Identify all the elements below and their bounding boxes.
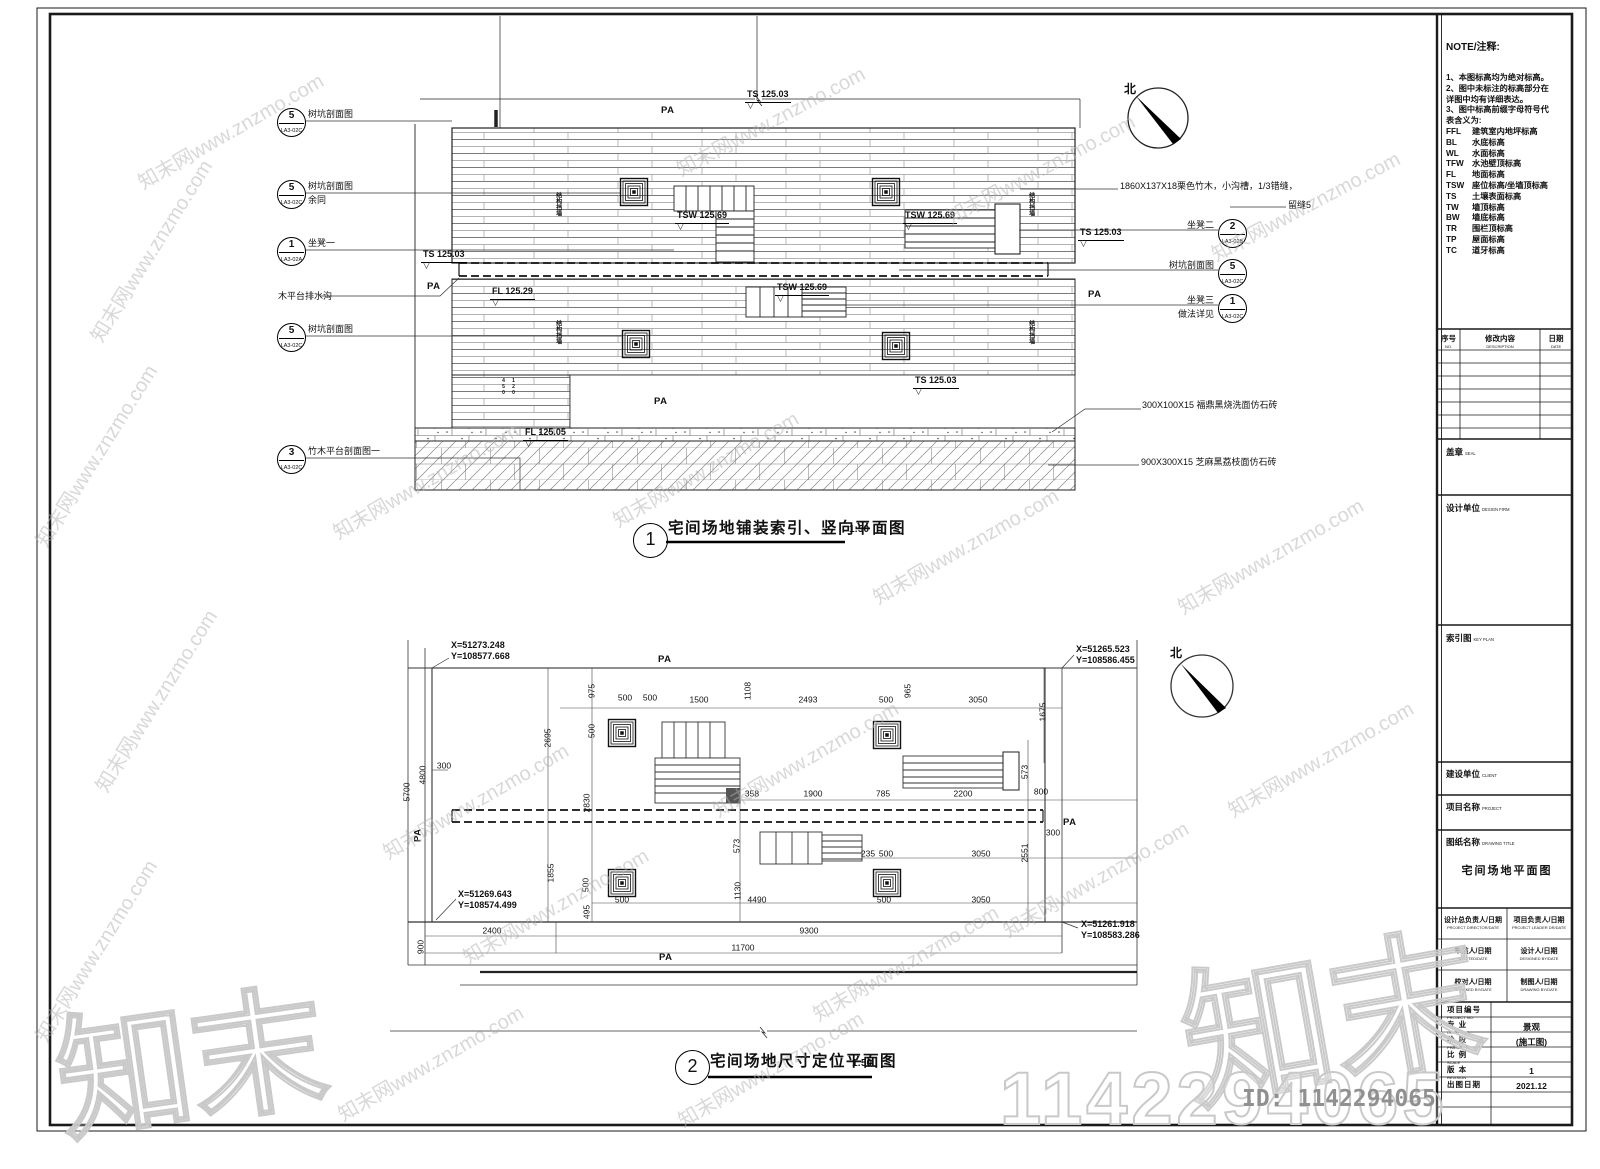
note-line: 表含义为: [1446,116,1570,127]
dimension-label: 1900 [804,789,823,798]
elevation-label: FL 125.29 [490,287,535,300]
abbreviation-desc: 屋面标高 [1472,235,1505,246]
callout-label: 竹木平台剖面图一 [308,447,380,457]
staff-cell: 项目负责人/日期PROJECT LEADER DR/DATE [1506,915,1572,930]
abbreviation-row: FFL建筑室内地坪标高 [1446,127,1570,138]
staff-cell-zh: 项目负责人/日期 [1506,915,1572,925]
dimension-label: 500 [587,724,596,738]
abbreviation-row: TW墙顶标高 [1446,203,1570,214]
plan1-title-number: 1 [633,523,668,558]
dimension-label: 4800 [418,766,427,785]
staff-cell: 设计人/日期DESIGNED BY/DATE [1506,946,1572,961]
staff-cell-zh: 制图人/日期 [1506,977,1572,987]
abbreviation-row: TS土壤表面标高 [1446,192,1570,203]
coordinate-label: X=51269.643Y=108574.499 [458,889,517,911]
staff-cell-en: DRAWING BY/DATE [1506,987,1572,992]
dimension-label: 800 [1034,787,1048,796]
info-row-value: 景观 [1491,1021,1572,1033]
callout-number: 1 [1219,296,1246,307]
abbreviation-code: FFL [1446,127,1472,138]
revision-col-date: 日期DATE [1540,333,1572,349]
annotation-label: 1860X137X18栗色竹木，小沟槽，1/3错缝， [1120,182,1298,192]
plan1-title: 宅间场地铺装索引、竖向平面图 [668,516,906,538]
callout-number: 5 [278,325,305,336]
abbreviation-row: BL水底标高 [1446,138,1570,149]
drawing-sheet: 1 宅间场地铺装索引、竖向平面图 1:50 2 宅间场地尺寸定位平面图 1:50… [0,0,1600,1139]
vertical-text-label: 结构挡墙 [554,320,561,344]
dimension-label: 495 [582,905,591,919]
dimension-label: 2551 [1020,844,1029,863]
abbreviation-row: TP屋面标高 [1446,235,1570,246]
vertical-text-label: 450 [500,378,506,396]
client-label: 建设单位CLIENT [1446,764,1497,782]
dimension-label: 965 [903,684,912,698]
plan2-scale: 1:50 [852,1058,872,1069]
detail-callout: 5LA3-02C [277,180,306,209]
callout-label: 坐凳一 [308,239,335,249]
dimension-label: 500 [643,693,657,702]
abbreviation-desc: 地面标高 [1472,170,1505,181]
abbreviation-desc: 土壤表面标高 [1472,192,1521,203]
notes-title: NOTE/注释: [1446,38,1570,53]
callout-label: 树坑剖面图 [308,110,353,120]
pa-label: PA [661,106,675,116]
callout-number: 5 [278,182,305,193]
drawing-title-value: 宅间场地平面图 [1442,862,1572,878]
dimension-label: 573 [732,839,741,853]
callout-sheet: LA3-02C [278,343,305,349]
elevation-label: TSW 125.69 [775,283,829,296]
callout-sheet: LA3-02C [278,200,305,206]
dimension-label: 9300 [800,926,819,935]
notes-list: 1、本图标高均为绝对标高。2、图中未标注的标高部分在详图中均有详细表达。3、图中… [1446,73,1570,127]
callout-sheet: LA3-02C [1219,314,1246,320]
abbreviation-desc: 墙顶标高 [1472,203,1505,214]
callout-sheet: LA3-02C [278,465,305,471]
pa-label: PA [1063,818,1077,828]
abbreviation-desc: 水面标高 [1472,149,1505,160]
abbreviation-desc: 围栏顶标高 [1472,224,1513,235]
coordinate-y: Y=108574.499 [458,900,517,911]
abbreviation-row: TSW座位标高/坐墙顶标高 [1446,181,1570,192]
pa-label: PA [658,655,672,665]
coordinate-x: X=51261.918 [1081,919,1140,930]
annotation-label: 300X100X15 福鼎黑烧洗面仿石砖 [1142,401,1278,411]
north-arrow-2 [1171,655,1233,717]
coordinate-x: X=51273.248 [451,640,510,651]
abbreviation-row: TR围栏顶标高 [1446,224,1570,235]
callout-sheet: LA3-02A [278,257,305,263]
abbreviation-row: FL地面标高 [1446,170,1570,181]
dimension-label: 2830 [582,794,591,813]
abbreviation-row: WL水面标高 [1446,149,1570,160]
note-line: 1、本图标高均为绝对标高。 [1446,73,1570,84]
callout-sublabel: 做法详见 [1178,310,1214,320]
callout-number: 3 [278,447,305,458]
abbreviation-code: TW [1446,203,1472,214]
dimension-label: 573 [1020,765,1029,779]
callout-label: 树坑剖面图 [1169,261,1214,271]
info-row-value: (施工图) [1491,1036,1572,1048]
dimension-label: 300 [1046,828,1060,837]
dimension-label: 500 [615,895,629,904]
callout-sublabel: 余同 [308,196,326,206]
watermark-id-text: ID: 1142294065 [1242,1086,1436,1112]
abbreviation-row: TFW水池壁顶标高 [1446,159,1570,170]
coordinate-label: X=51265.523Y=108586.455 [1076,644,1135,666]
abbreviation-desc: 墙底标高 [1472,213,1505,224]
dimension-label: 500 [879,849,893,858]
project-label: 项目名称PROJECT [1446,797,1502,815]
coordinate-label: X=51261.918Y=108583.286 [1081,919,1140,941]
callout-label: 树坑剖面图 [308,182,353,192]
staff-cell-en: DESIGNED BY/DATE [1506,956,1572,961]
north-label-2: 北 [1170,644,1182,661]
dimension-label: 1130 [733,882,742,900]
abbreviation-desc: 建筑室内地坪标高 [1472,127,1538,138]
annotation-label: 900X300X15 芝麻黑荔枝面仿石砖 [1141,458,1277,468]
coordinate-x: X=51269.643 [458,889,517,900]
dimension-label: 4490 [748,895,767,904]
pa-label: PA [427,282,441,292]
pa-label: PA [1088,290,1102,300]
callout-sheet: LA3-02C [1219,279,1246,285]
abbreviation-desc: 座位标高/坐墙顶标高 [1472,181,1548,192]
coordinate-y: Y=108583.286 [1081,930,1140,941]
abbreviation-code: TR [1446,224,1472,235]
callout-sheet: LA3-02C [278,128,305,134]
note-line: 3、图中标高前缀字母符号代 [1446,105,1570,116]
dimension-label: 1108 [743,682,752,700]
dimension-label: 3050 [972,849,991,858]
elevation-label: FL 125.05 [523,428,568,441]
dimension-label: 975 [587,684,596,698]
abbreviation-code: TS [1446,192,1472,203]
vertical-text-label: 120 [510,378,516,396]
coordinate-label: X=51273.248Y=108577.668 [451,640,510,662]
pa-label: PA [654,397,668,407]
coordinate-y: Y=108577.668 [451,651,510,662]
dimension-label: 5700 [402,783,411,802]
dimension-label: 1675 [1038,703,1047,722]
elevation-label: TS 125.03 [1078,228,1124,241]
abbreviation-code: TC [1446,246,1472,257]
abbreviation-desc: 水底标高 [1472,138,1505,149]
key-plan-label: 索引图KEY PLAN [1446,628,1494,646]
abbreviation-row: BW墙底标高 [1446,213,1570,224]
callout-label: 树坑剖面图 [308,325,353,335]
north-arrow-1 [1128,88,1188,148]
vertical-text-label: 结构挡墙 [1027,192,1034,216]
abbreviation-code: WL [1446,149,1472,160]
revision-col-description: 修改内容DESCRIPTION [1460,333,1540,349]
callout-label: 坐凳三 [1187,296,1214,306]
dimension-label: 235 [861,849,875,858]
coordinate-x: X=51265.523 [1076,644,1135,655]
callout-number: 1 [278,239,305,250]
info-row-value: 2021.12 [1491,1081,1572,1091]
elevation-label: TS 125.03 [913,376,959,389]
note-line: 2、图中未标注的标高部分在 [1446,84,1570,95]
dimension-label: 900 [416,940,425,954]
abbreviation-code: BL [1446,138,1472,149]
detail-callout: 1LA3-02A [277,237,306,266]
callout-label: 坐凳二 [1187,221,1214,231]
dimension-label: 1500 [690,695,709,704]
detail-callout: 5LA3-02C [277,323,306,352]
elevation-label: TS 125.03 [421,250,467,263]
detail-callout: 1LA3-02C [1218,294,1247,323]
abbreviation-list: FFL建筑室内地坪标高BL水底标高WL水面标高TFW水池壁顶标高FL地面标高TS… [1446,127,1570,257]
plan2-title-number: 2 [675,1050,710,1085]
dimension-label: 500 [618,693,632,702]
dimension-label: 500 [877,895,891,904]
staff-cell: 制图人/日期DRAWING BY/DATE [1506,977,1572,992]
dimension-label: 11700 [731,943,754,952]
drawing-title-label: 图纸名称DRAWING TITLE [1446,832,1515,850]
staff-cell-zh: 设计人/日期 [1506,946,1572,956]
elevation-label: TSW 125.69 [675,211,729,224]
abbreviation-code: FL [1446,170,1472,181]
dimension-label: 2200 [954,789,973,798]
plan1-scale: 1:50 [849,524,869,535]
annotation-label: 木平台排水沟 [278,292,332,302]
coordinate-y: Y=108586.455 [1076,655,1135,666]
notes-panel: NOTE/注释: 1、本图标高均为绝对标高。2、图中未标注的标高部分在详图中均有… [1446,38,1570,257]
dimension-label: 300 [437,761,451,770]
staff-cell-en: PROJECT LEADER DR/DATE [1506,925,1572,930]
revision-col-no: 序号NO. [1437,333,1460,349]
abbreviation-code: TSW [1446,181,1472,192]
note-line: 详图中均有详细表达。 [1446,95,1570,106]
dimension-label: 3050 [969,695,988,704]
abbreviation-code: TP [1446,235,1472,246]
detail-callout: 3LA3-02C [277,445,306,474]
north-label-1: 北 [1124,80,1136,97]
seal-label: 盖章SEAL [1446,442,1476,460]
info-row-value: 1 [1491,1066,1572,1076]
vertical-text-label: 结构挡墙 [554,192,561,216]
abbreviation-code: TFW [1446,159,1472,170]
dimension-label: 785 [876,789,890,798]
dimension-label: 1855 [546,864,555,883]
design-firm-label: 设计单位DESIGN FIRM [1446,498,1509,516]
dimension-label: 2493 [799,695,818,704]
abbreviation-code: BW [1446,213,1472,224]
abbreviation-desc: 水池壁顶标高 [1472,159,1521,170]
abbreviation-desc: 道牙标高 [1472,246,1505,257]
pa-label: PA [659,953,673,963]
abbreviation-row: TC道牙标高 [1446,246,1570,257]
vertical-text-label: 结构挡墙 [1027,320,1034,344]
